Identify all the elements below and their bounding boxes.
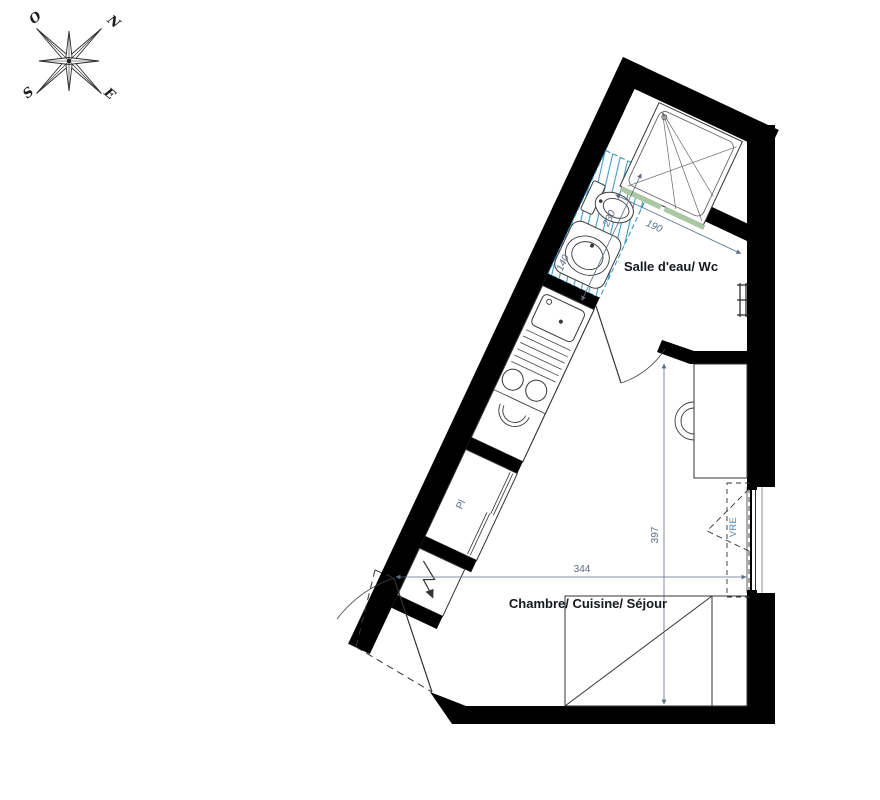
bed <box>565 596 747 706</box>
shower-width-dim: 190 <box>644 218 664 235</box>
room-length-dim: 397 <box>650 526 661 543</box>
bathroom-door <box>596 306 665 383</box>
bathroom-partition-wall <box>657 340 747 364</box>
compass-east-label: E <box>100 85 119 104</box>
chair-inner <box>681 408 694 434</box>
compass-rose: O N S E <box>20 9 123 104</box>
left-exterior-wall <box>348 57 645 654</box>
room-width-dim: 344 <box>574 564 591 575</box>
french-window: VRE <box>707 483 762 597</box>
chair-outer <box>675 402 694 440</box>
floor-plan-page: O N S E <box>0 0 880 800</box>
bathroom-door-leaf <box>596 306 621 383</box>
shutter-label: VRE <box>728 517 738 537</box>
right-exterior-wall-lower <box>747 593 775 724</box>
floor-plan-drawing: O N S E <box>0 0 880 800</box>
bottom-exterior-wall <box>430 692 775 724</box>
compass-center <box>67 59 71 63</box>
main-room-label: Chambre/ Cuisine/ Séjour <box>509 596 667 611</box>
bathroom-label: Salle d'eau/ Wc <box>624 259 718 274</box>
compass-north-label: N <box>103 12 123 32</box>
right-exterior-wall-upper <box>747 125 775 487</box>
window-jamb-bottom <box>747 590 757 594</box>
desk-area <box>675 364 747 478</box>
bed-diagonal <box>565 596 712 706</box>
compass-west-label: O <box>27 9 46 28</box>
bed-outline <box>565 596 747 706</box>
bathroom-door-swing <box>621 349 665 383</box>
desk <box>694 364 747 478</box>
compass-south-label: S <box>20 85 37 103</box>
